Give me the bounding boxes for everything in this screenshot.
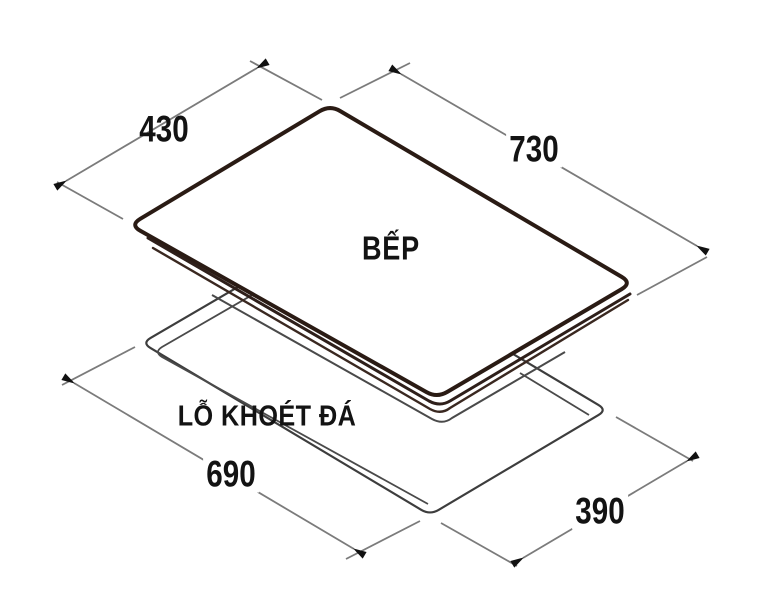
dim-690-ext-left bbox=[62, 347, 135, 385]
cooktop-label: BẾP bbox=[362, 232, 420, 265]
dim-390-ext-bottom bbox=[441, 523, 517, 566]
dim-430-label: 430 bbox=[139, 111, 188, 148]
dim-730-ext-top bbox=[340, 63, 410, 98]
installation-diagram: 430 730 690 390 BẾP LỖ KHOÉT ĐÁ bbox=[0, 0, 768, 614]
cutout-label: LỖ KHOÉT ĐÁ bbox=[178, 403, 357, 432]
dim-390-label: 390 bbox=[572, 493, 628, 530]
dim-730-label: 730 bbox=[506, 131, 562, 168]
dim-690-ext-bottom bbox=[346, 521, 420, 559]
diagram-linework bbox=[0, 0, 768, 614]
dim-690-label: 690 bbox=[203, 456, 259, 493]
dim-390-ext-right bbox=[616, 417, 693, 461]
dim-430-ext-top bbox=[250, 61, 322, 100]
dim-730-ext-right bbox=[637, 257, 707, 295]
dim-430-ext-left bbox=[57, 182, 123, 219]
